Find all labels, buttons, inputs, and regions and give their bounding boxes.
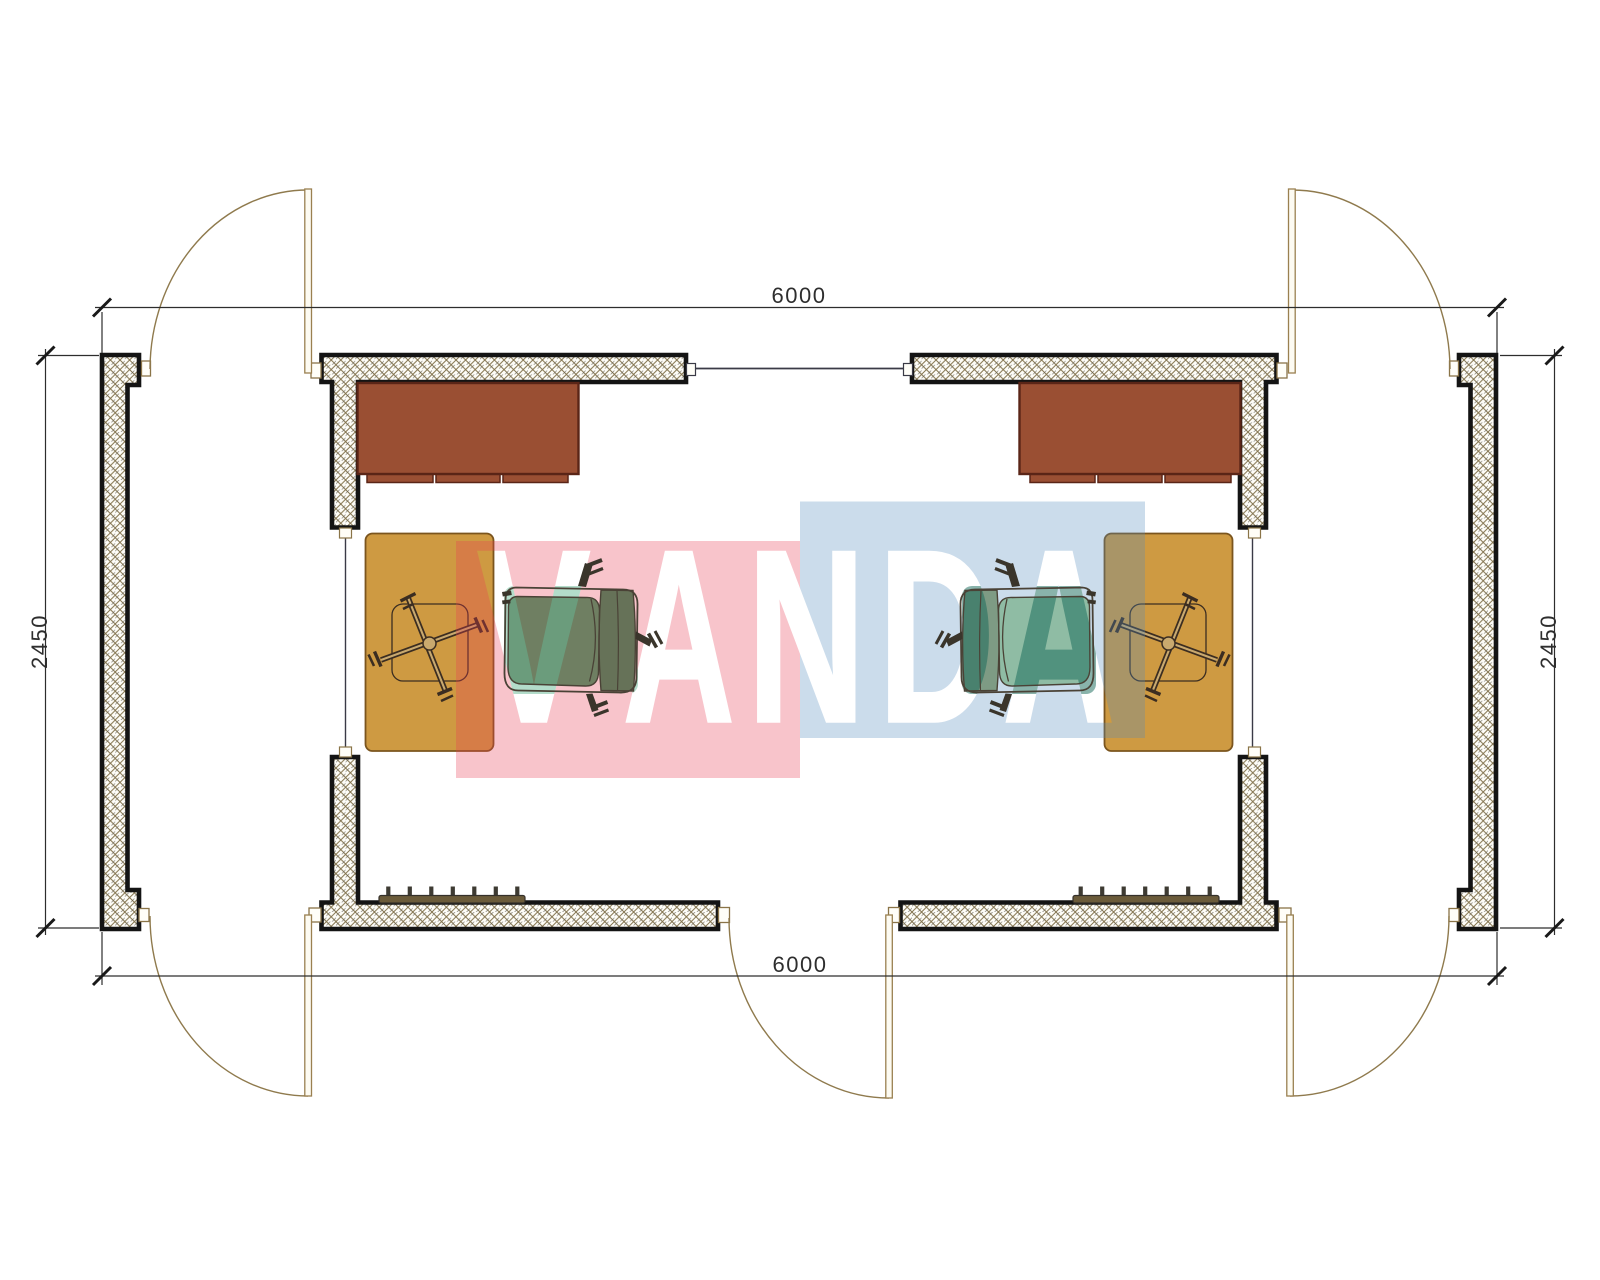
svg-text:2450: 2450 [1536, 614, 1561, 669]
svg-text:2450: 2450 [27, 614, 52, 669]
svg-text:6000: 6000 [772, 283, 827, 308]
svg-text:6000: 6000 [773, 952, 828, 977]
